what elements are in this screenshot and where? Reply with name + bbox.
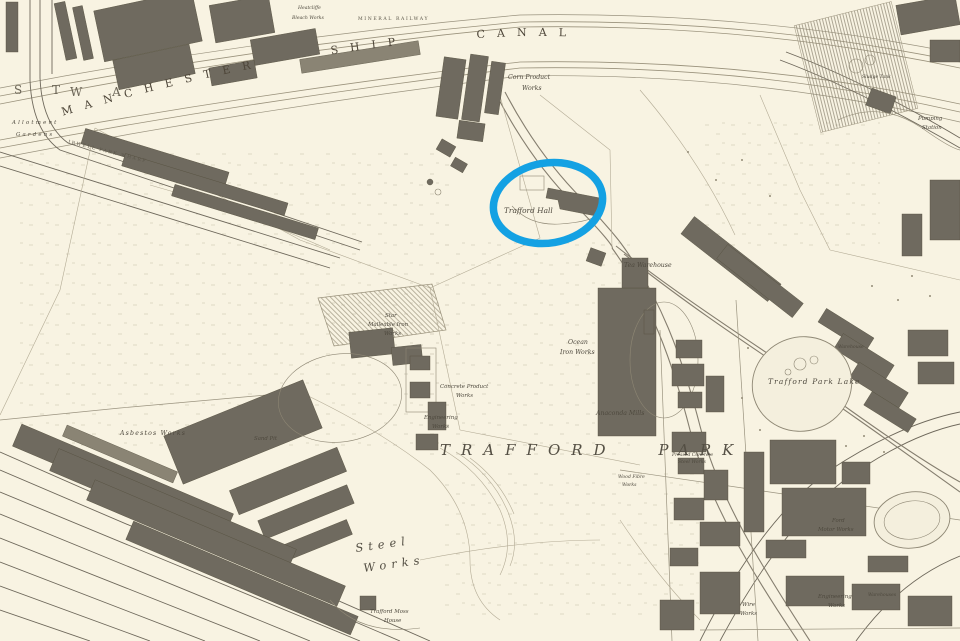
label-allotment-2: Gardens [16,132,54,138]
label-sand-pit: Sand Pit [254,436,278,442]
label-sludge-tank: Sludge Tank [862,74,891,80]
label-moss-2: House [383,618,401,624]
label-asbestos: Asbestos Works [119,430,186,437]
label-star-2: Malleable Iron [367,322,409,328]
label-wood-fibre-1: Wood Fibre [618,474,645,480]
label-engineering-se-1: Engineering [817,594,852,600]
label-anaconda: Anaconda Mills [595,410,644,417]
label-wire-1: Wire [742,602,755,608]
label-engineering-w-2: Works [432,424,449,430]
label-trafford-hall: Trafford Hall [504,206,553,215]
map-canvas[interactable]: MANCHESTER SHIP CANAL TRAFFORD PARK Traf… [0,0,960,641]
label-pumping-1: Pumping [917,116,943,122]
label-bleach-2: Bleach Works [291,15,324,21]
label-steel-2: Works [362,553,425,575]
label-moss-1: Trafford Moss [370,609,409,615]
label-bleach-1: Heatcliffe [297,5,321,11]
label-ford-2: Motor Works [817,527,854,533]
label-wood-fibre-2: Works [622,482,637,488]
label-pressed-1: Pressed Concrete [671,452,713,458]
label-lake: Trafford Park Lake [768,377,861,386]
label-pressed-2: Steel Works [678,459,707,465]
label-tea-warehouse: Tea Warehouse [624,262,672,269]
label-ocean-2: Iron Works [559,349,595,356]
label-ward-wa: W A [70,85,134,99]
southeast-works [786,556,952,626]
ford-motor-works-buildings [744,440,870,558]
label-star-3: Works [384,331,401,337]
label-allotment-1: Allotment [11,120,59,126]
label-ocean-1: Ocean [568,339,588,346]
label-wire-2: Works [740,611,757,617]
label-concrete-1: Concrete Product [440,384,489,390]
label-star-1: Star [385,313,397,319]
label-ford-1: Ford [831,518,845,524]
label-mineral-railway: MINERAL RAILWAY [358,16,429,22]
label-corn-product-1: Corn Product [508,74,551,81]
label-warehouse-ne: Warehouse [838,344,864,350]
label-corn-product-2: Works [522,85,542,92]
label-engineering-w-1: Engineering [423,415,458,421]
label-warehouses-se: Warehouses [868,592,897,598]
label-steel-1: Steel [354,533,410,554]
label-ward-st: S T [14,83,73,97]
map-image: MANCHESTER SHIP CANAL TRAFFORD PARK Traf… [0,0,960,641]
label-engineering-se-2: Works [828,603,845,609]
label-pumping-2: Station [922,125,942,131]
southeast-pond [870,487,953,553]
label-concrete-2: Works [456,393,473,399]
